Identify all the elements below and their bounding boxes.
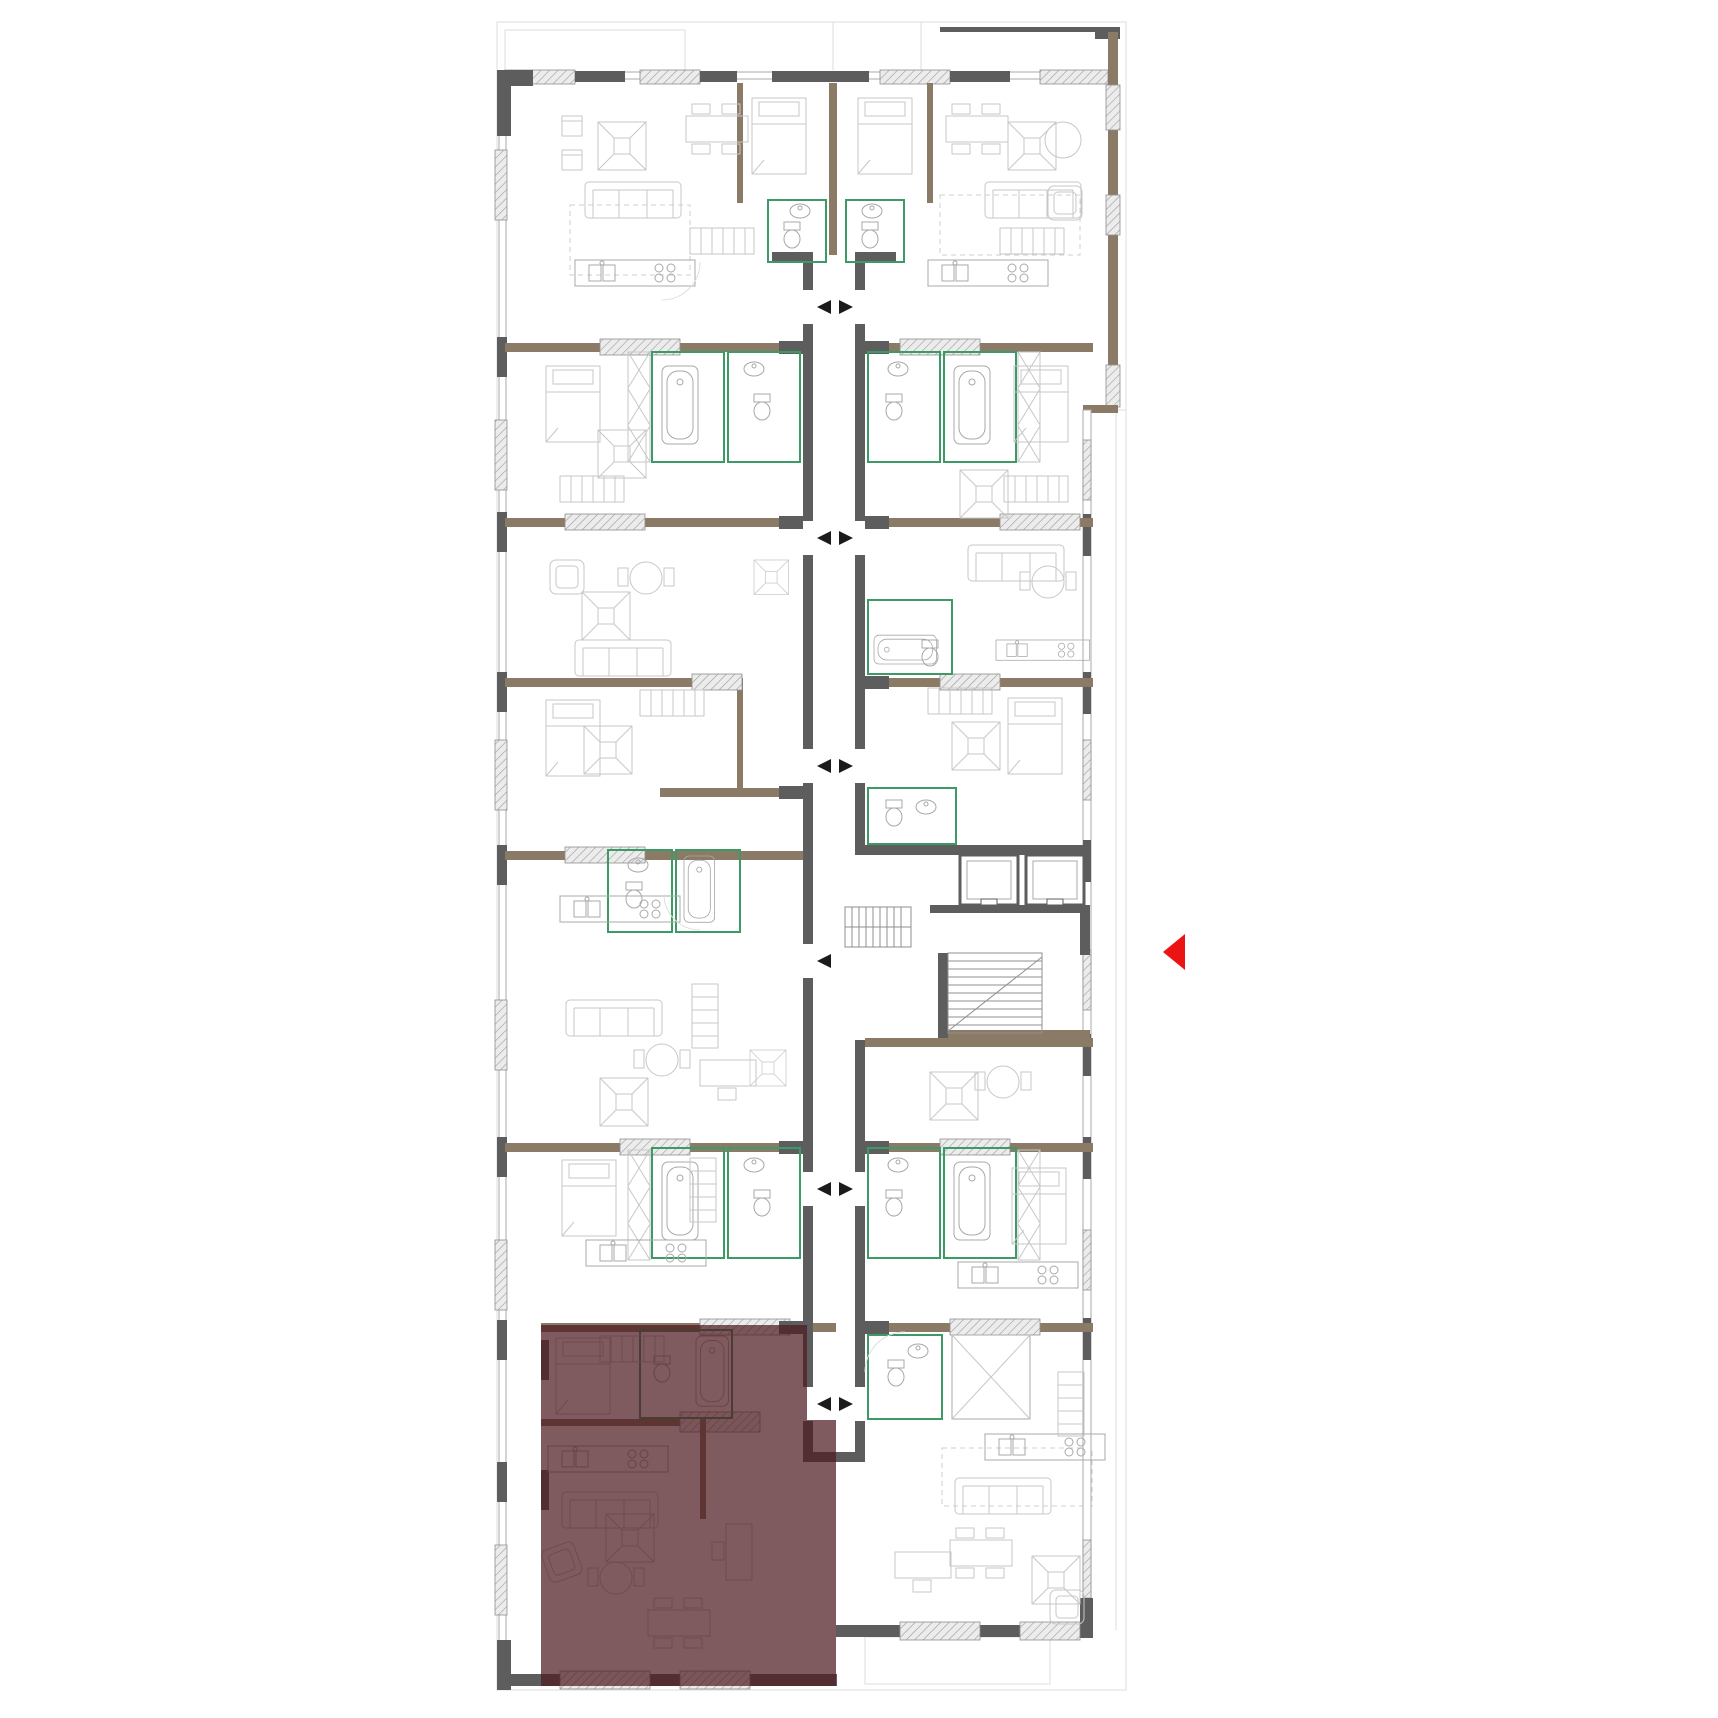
stair-elevator-core bbox=[845, 845, 1090, 1038]
door-arrow-icon bbox=[817, 759, 831, 773]
furniture-table bbox=[582, 592, 630, 640]
furniture-wardrobe bbox=[690, 228, 754, 254]
door-arrow-icon bbox=[839, 531, 853, 545]
furniture-table bbox=[1032, 1556, 1080, 1604]
furniture-desk bbox=[895, 1552, 951, 1592]
bathroom bbox=[676, 850, 740, 932]
furniture-sofa bbox=[985, 182, 1081, 218]
furniture-bed bbox=[858, 98, 912, 174]
closet-shelving bbox=[628, 352, 650, 462]
furniture-round-table bbox=[975, 1066, 1031, 1098]
bathroom bbox=[652, 352, 724, 462]
furniture-wardrobe bbox=[560, 476, 624, 502]
door-arrow-icon bbox=[817, 300, 831, 314]
furniture-wardrobe bbox=[1058, 1372, 1084, 1436]
door-swing bbox=[865, 1332, 905, 1372]
highlighted-unit-overlay[interactable] bbox=[541, 1325, 836, 1686]
furniture-wardrobe bbox=[1004, 476, 1068, 502]
furniture-round-table bbox=[1045, 122, 1081, 158]
furniture-bed bbox=[546, 366, 600, 442]
furniture-bed bbox=[1008, 698, 1062, 774]
furniture-table bbox=[754, 560, 789, 595]
furniture-armchair bbox=[550, 560, 584, 594]
bathroom bbox=[868, 1148, 940, 1258]
furniture-table bbox=[598, 430, 646, 478]
floor-plan-canvas bbox=[0, 0, 1718, 1718]
door-arrow-icon bbox=[817, 954, 831, 968]
furniture-table bbox=[598, 122, 646, 170]
bathrooms bbox=[608, 200, 1030, 1419]
furniture-bed bbox=[1014, 366, 1068, 442]
kitchen-counter bbox=[958, 1262, 1078, 1288]
furniture-table bbox=[930, 1072, 978, 1120]
stair-flight-upper bbox=[845, 907, 911, 947]
door-arrow-icon bbox=[817, 531, 831, 545]
furniture-bed bbox=[1012, 1168, 1066, 1244]
door-arrow-icon bbox=[839, 759, 853, 773]
bathroom bbox=[944, 352, 1016, 462]
furniture-round-table bbox=[618, 562, 674, 594]
bathroom bbox=[944, 1148, 1016, 1258]
interior-walls bbox=[505, 83, 1093, 1519]
furniture-chair bbox=[562, 116, 582, 136]
kitchen-counter bbox=[928, 260, 1048, 286]
door-arrow-icon bbox=[839, 1397, 853, 1411]
furniture-sofa bbox=[968, 545, 1064, 581]
elevator bbox=[1026, 855, 1084, 905]
door-swing bbox=[664, 894, 700, 930]
closet-shelving bbox=[628, 1150, 650, 1260]
furniture-dining-table bbox=[946, 104, 1008, 154]
furniture-bed bbox=[546, 700, 600, 776]
kitchen-counter bbox=[996, 640, 1090, 660]
furniture-armchair bbox=[1048, 186, 1082, 220]
furniture-wardrobe bbox=[692, 984, 718, 1048]
entrance-marker-icon bbox=[1163, 934, 1185, 970]
furniture-table bbox=[750, 1050, 786, 1086]
closet-shelving bbox=[1018, 352, 1040, 462]
furniture-dining-table bbox=[950, 1528, 1012, 1578]
furniture-table bbox=[584, 726, 632, 774]
kitchen-counter bbox=[575, 260, 695, 286]
furniture-round-table bbox=[1020, 566, 1076, 598]
furniture-sofa bbox=[585, 182, 681, 218]
furniture-round-table bbox=[634, 1044, 690, 1076]
corridor-arrows bbox=[817, 300, 853, 1411]
bathroom bbox=[652, 1148, 724, 1258]
bathroom bbox=[868, 788, 956, 844]
door-arrow-icon bbox=[817, 1397, 831, 1411]
furniture-bed bbox=[752, 98, 806, 174]
bathroom bbox=[728, 352, 800, 462]
bathroom bbox=[868, 352, 940, 462]
door-arrow-icon bbox=[839, 1182, 853, 1196]
kitchen-counter bbox=[560, 896, 680, 922]
furniture-table bbox=[952, 722, 1000, 770]
furniture-desk bbox=[700, 1060, 756, 1100]
furniture-sofa bbox=[575, 640, 671, 676]
shower-room bbox=[952, 1335, 1030, 1419]
furniture-armchair bbox=[1050, 1590, 1084, 1624]
furniture-wardrobe bbox=[928, 688, 992, 714]
door-arrow-icon bbox=[817, 1182, 831, 1196]
furniture-wardrobe bbox=[640, 690, 704, 716]
furniture-wardrobe bbox=[1000, 228, 1064, 254]
furniture-sofa bbox=[566, 1000, 662, 1036]
stair-flight-main bbox=[948, 953, 1042, 1033]
door-arrow-icon bbox=[839, 300, 853, 314]
furniture-table bbox=[600, 1078, 648, 1126]
bathroom bbox=[868, 1335, 942, 1419]
furniture-wardrobe bbox=[690, 1158, 716, 1222]
furniture-chair bbox=[562, 150, 582, 170]
elevator bbox=[960, 855, 1018, 905]
bathroom bbox=[728, 1148, 800, 1258]
furniture-bed bbox=[562, 1160, 616, 1236]
bathroom bbox=[868, 600, 952, 674]
furniture-table bbox=[960, 470, 1008, 518]
furniture-sofa bbox=[955, 1478, 1051, 1514]
